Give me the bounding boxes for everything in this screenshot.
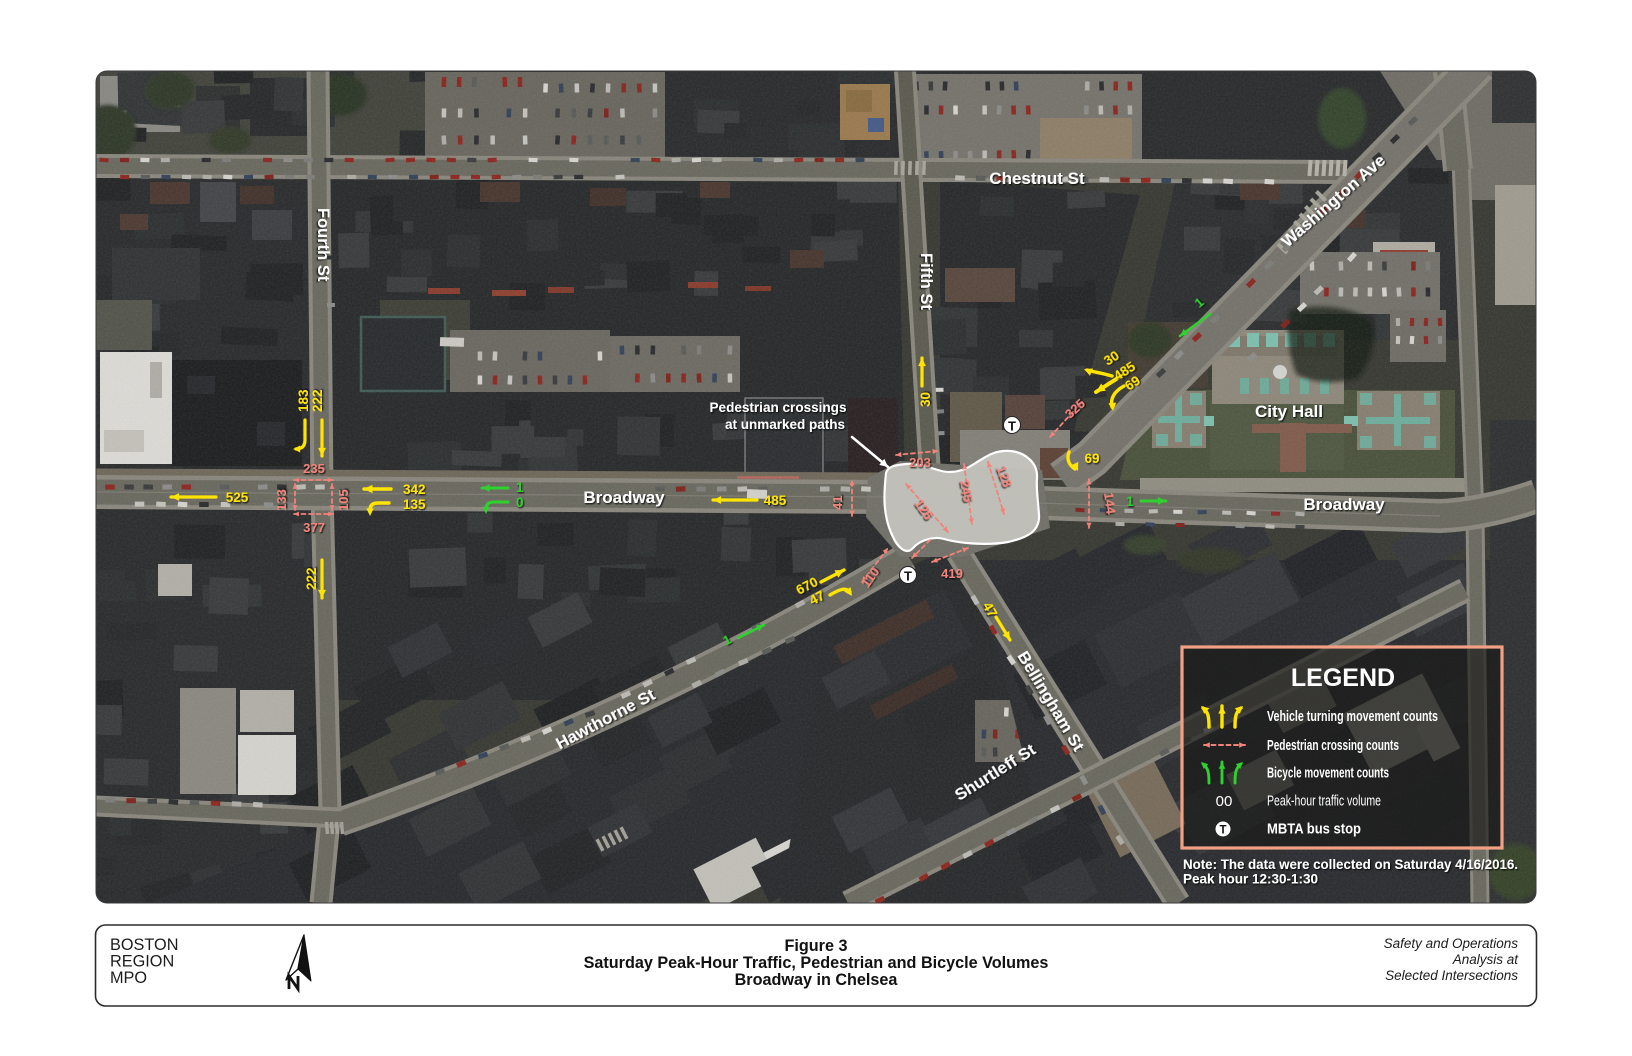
svg-text:Broadway: Broadway <box>1303 495 1385 514</box>
svg-text:Pedestrian crossing counts: Pedestrian crossing counts <box>1267 737 1399 754</box>
svg-text:41: 41 <box>830 496 845 510</box>
svg-text:222: 222 <box>304 567 319 590</box>
svg-text:485: 485 <box>764 493 787 508</box>
svg-text:203: 203 <box>909 455 931 470</box>
svg-text:Peak-hour traffic volume: Peak-hour traffic volume <box>1267 793 1381 810</box>
svg-text:135: 135 <box>403 497 426 512</box>
svg-text:T: T <box>904 569 912 584</box>
svg-text:Peak hour 12:30-1:30: Peak hour 12:30-1:30 <box>1183 871 1318 887</box>
svg-text:377: 377 <box>303 520 325 535</box>
svg-text:0: 0 <box>516 495 524 510</box>
svg-text:30: 30 <box>918 392 933 407</box>
svg-text:MPO: MPO <box>110 969 147 987</box>
svg-text:Broadway in Chelsea: Broadway in Chelsea <box>735 971 899 989</box>
svg-text:Analysis at: Analysis at <box>1452 952 1520 967</box>
svg-text:00: 00 <box>1216 793 1233 810</box>
svg-text:105: 105 <box>336 489 351 511</box>
svg-text:419: 419 <box>941 566 963 581</box>
svg-text:183: 183 <box>296 389 311 412</box>
svg-text:Figure 3: Figure 3 <box>785 937 848 955</box>
svg-text:133: 133 <box>274 489 289 511</box>
svg-text:Saturday Peak-Hour Traffic, Pe: Saturday Peak-Hour Traffic, Pedestrian a… <box>584 954 1049 972</box>
svg-text:Broadway: Broadway <box>583 488 665 507</box>
svg-text:Bicycle movement counts: Bicycle movement counts <box>1267 765 1389 782</box>
svg-text:City Hall: City Hall <box>1255 402 1323 421</box>
svg-text:Selected Intersections: Selected Intersections <box>1385 968 1518 983</box>
svg-text:Pedestrian crossings: Pedestrian crossings <box>710 399 847 415</box>
svg-text:Chestnut St: Chestnut St <box>989 169 1085 188</box>
svg-text:at unmarked paths: at unmarked paths <box>725 416 845 432</box>
svg-text:REGION: REGION <box>110 953 174 971</box>
svg-text:LEGEND: LEGEND <box>1291 664 1395 692</box>
svg-text:342: 342 <box>403 482 426 497</box>
svg-text:Fourth St: Fourth St <box>314 208 332 282</box>
svg-text:BOSTON: BOSTON <box>110 936 178 954</box>
svg-text:525: 525 <box>226 490 249 505</box>
svg-text:T: T <box>1219 825 1226 837</box>
svg-text:1: 1 <box>516 480 524 495</box>
svg-text:69: 69 <box>1084 451 1099 466</box>
svg-text:T: T <box>1008 419 1016 434</box>
svg-text:Fifth St: Fifth St <box>917 253 935 310</box>
svg-text:MBTA bus stop: MBTA bus stop <box>1267 821 1361 838</box>
svg-text:235: 235 <box>303 461 325 476</box>
svg-text:144: 144 <box>1101 492 1119 516</box>
svg-text:222: 222 <box>310 389 325 412</box>
svg-text:1: 1 <box>1126 494 1134 509</box>
svg-text:Vehicle turning movement count: Vehicle turning movement counts <box>1267 708 1438 725</box>
svg-text:Safety and Operations: Safety and Operations <box>1384 936 1519 951</box>
